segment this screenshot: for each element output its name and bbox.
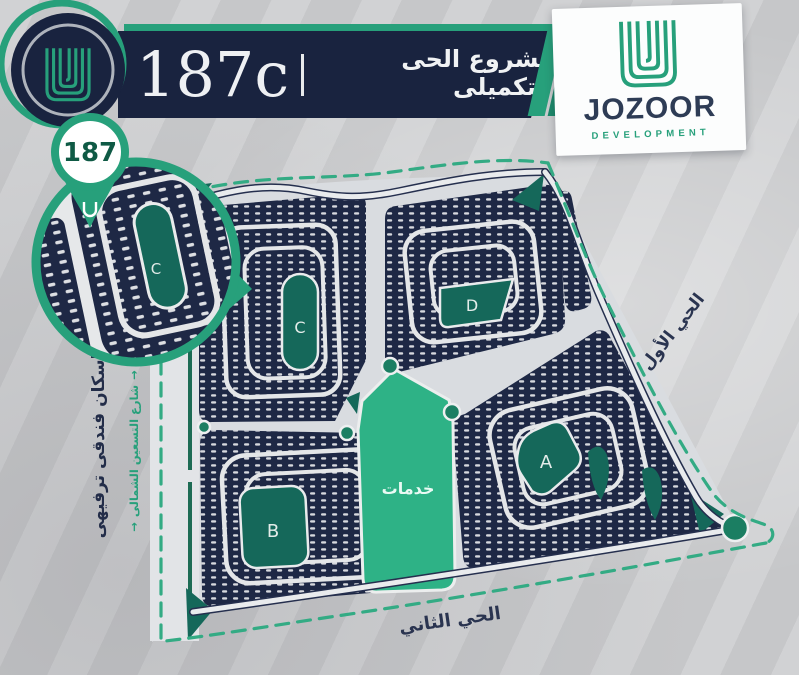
zone-d-label: D: [466, 296, 478, 315]
location-pin: 187: [48, 110, 138, 235]
banner-divider: [301, 54, 304, 96]
brand-tagline: DEVELOPMENT: [591, 127, 710, 142]
jozoor-logo-icon: [614, 13, 682, 93]
brand-card: JOZOOR DEVELOPMENT: [552, 3, 747, 156]
zone-c-label: C: [294, 318, 305, 337]
project-banner: 187c مشروع الحى التكميلى: [118, 31, 554, 118]
street-arrow-icon: →: [127, 522, 141, 532]
master-plan-poster: { "header": { "number": "187", "suffix":…: [0, 0, 799, 675]
street-label: →شارع التسعين الشمالى→: [127, 341, 141, 561]
zone-a-label: A: [540, 452, 553, 473]
brand-name: JOZOOR: [583, 92, 717, 126]
banner-accent-line: [124, 24, 556, 31]
pin-number: 187: [63, 138, 117, 168]
project-title: مشروع الحى التكميلى: [314, 45, 554, 105]
services-label: خدمات: [382, 479, 435, 498]
project-number: 187c: [136, 44, 289, 106]
zone-b-label: B: [267, 521, 279, 542]
inset-zone-label: C: [151, 260, 161, 278]
